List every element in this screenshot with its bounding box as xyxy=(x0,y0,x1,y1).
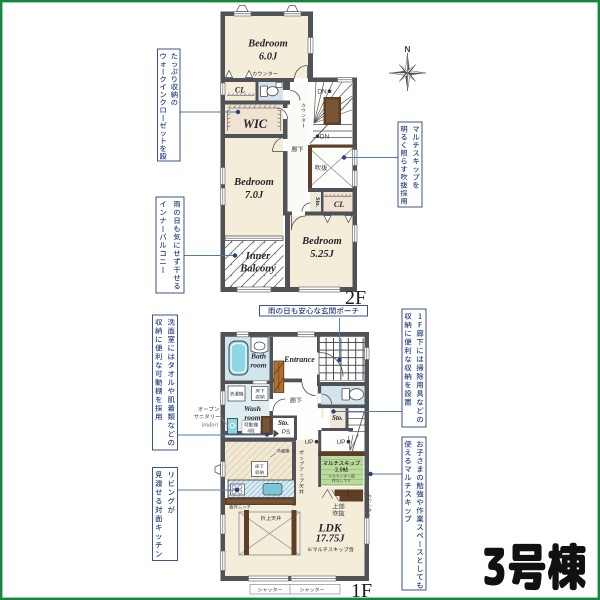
svg-text:UP: UP xyxy=(337,439,346,446)
svg-text:17.75J: 17.75J xyxy=(316,534,346,545)
svg-text:Wash: Wash xyxy=(244,404,261,413)
svg-text:PS: PS xyxy=(282,429,291,436)
svg-text:Sto.: Sto. xyxy=(332,414,343,422)
svg-text:CL: CL xyxy=(334,200,344,209)
svg-text:7.0J: 7.0J xyxy=(245,190,264,201)
svg-text:N: N xyxy=(404,44,410,54)
svg-text:Entrance: Entrance xyxy=(283,355,315,364)
svg-text:DN: DN xyxy=(317,89,327,96)
svg-text:5.25J: 5.25J xyxy=(310,249,334,260)
svg-text:WIC: WIC xyxy=(243,117,268,131)
svg-text:Bedroom: Bedroom xyxy=(247,39,288,50)
svg-text:Bath: Bath xyxy=(250,352,266,361)
svg-text:Sto.: Sto. xyxy=(278,419,289,427)
svg-text:DN: DN xyxy=(320,134,330,141)
svg-text:room: room xyxy=(244,413,260,422)
svg-text:irodori: irodori xyxy=(202,423,219,429)
svg-text:Bedroom: Bedroom xyxy=(233,177,274,188)
svg-text:6.0J: 6.0J xyxy=(259,52,278,63)
svg-text:1F: 1F xyxy=(351,580,372,600)
svg-text:UP: UP xyxy=(305,439,314,446)
svg-text:room: room xyxy=(250,361,266,370)
svg-text:Bedroom: Bedroom xyxy=(301,236,342,247)
svg-text:Inner: Inner xyxy=(245,251,271,262)
svg-text:Sto.: Sto. xyxy=(314,197,321,208)
svg-text:CL: CL xyxy=(235,86,245,95)
svg-text:Balcony: Balcony xyxy=(239,264,276,275)
